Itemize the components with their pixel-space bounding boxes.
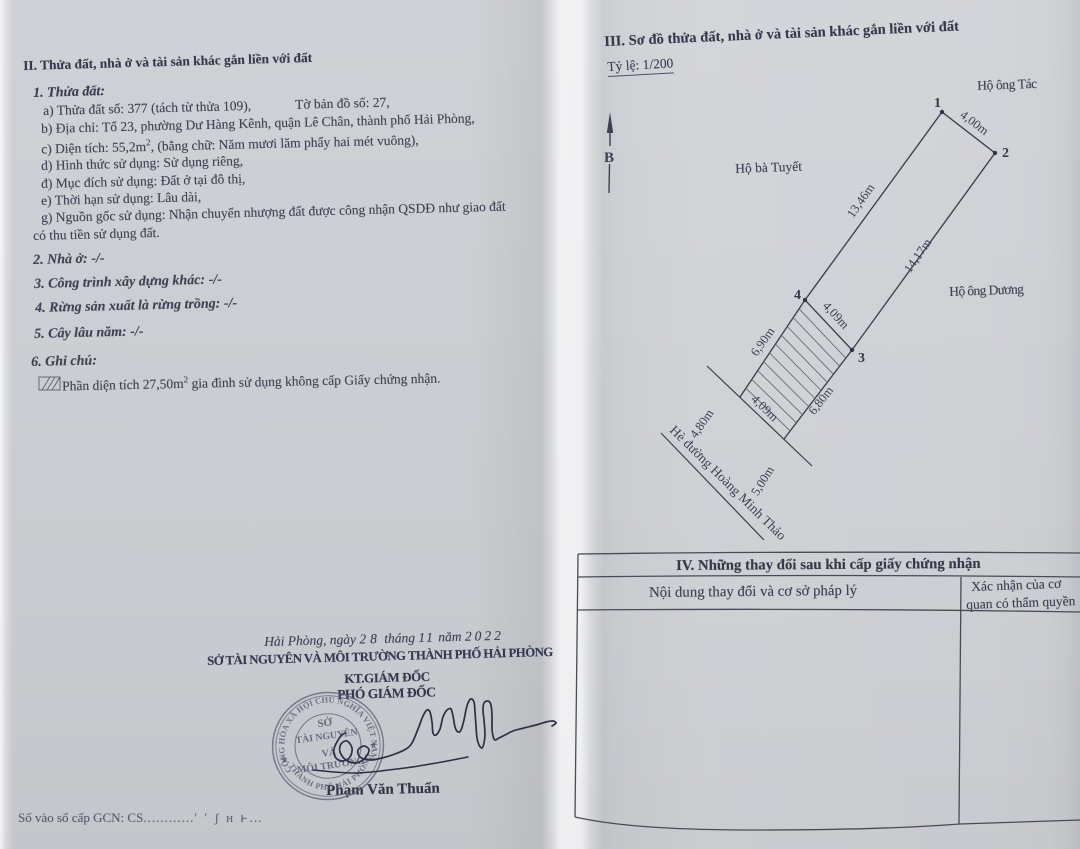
svg-text:SỞ: SỞ: [317, 716, 334, 730]
svg-text:2: 2: [1002, 146, 1009, 161]
svg-text:4: 4: [794, 288, 801, 303]
svg-text:Hè đường Hoàng Minh Thảo: Hè đường Hoàng Minh Thảo: [667, 422, 789, 543]
svg-text:6,80m: 6,80m: [806, 384, 837, 418]
svg-text:6,90m: 6,90m: [748, 324, 778, 358]
svg-text:4,09m: 4,09m: [820, 299, 852, 332]
svg-text:4,09m: 4,09m: [748, 392, 781, 424]
svg-text:14,17m: 14,17m: [901, 236, 934, 275]
svg-text:5,00m: 5,00m: [748, 464, 777, 499]
svg-text:13,46m: 13,46m: [844, 181, 877, 220]
svg-text:3: 3: [858, 351, 865, 366]
svg-text:1: 1: [934, 96, 941, 111]
svg-text:4,00m: 4,00m: [957, 108, 991, 138]
svg-text:B: B: [604, 150, 614, 166]
